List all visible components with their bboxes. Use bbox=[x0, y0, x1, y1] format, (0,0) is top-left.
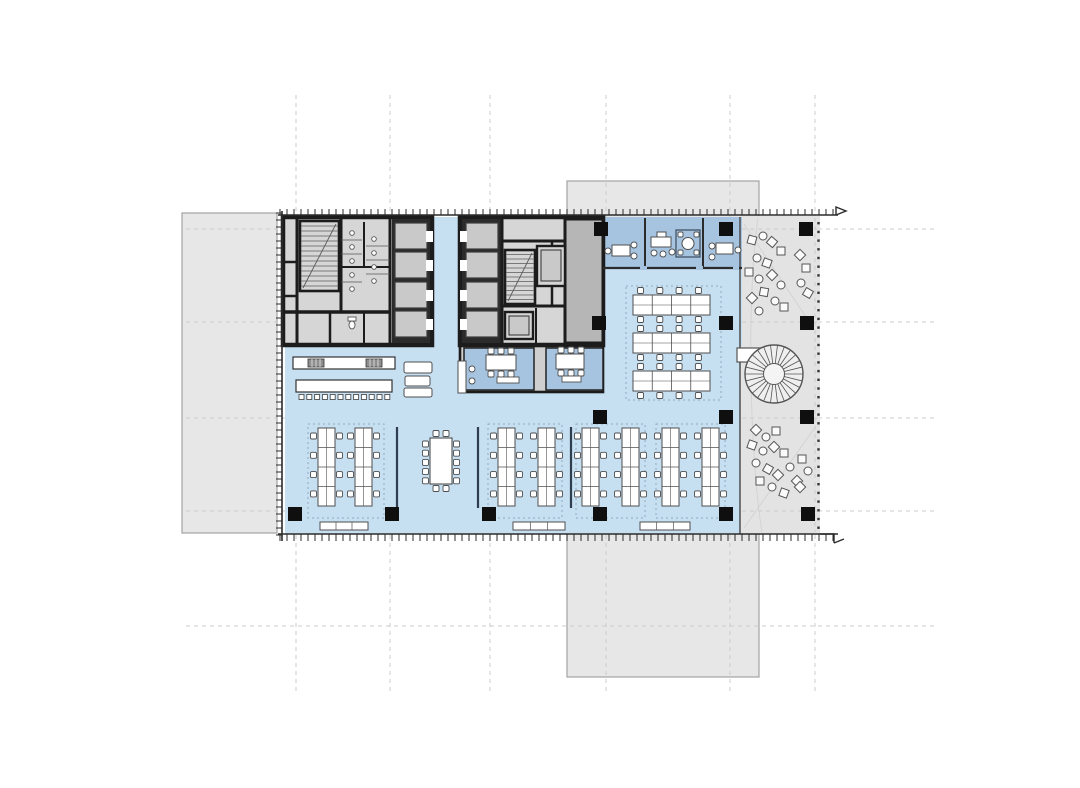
core-east-stairs-elevators bbox=[460, 217, 603, 345]
core-west-stairs-wc-elevators bbox=[283, 217, 433, 345]
meeting-rooms-small bbox=[460, 346, 603, 392]
floor-plan-page bbox=[0, 0, 1080, 788]
floor-plan-drawing bbox=[0, 0, 1080, 788]
